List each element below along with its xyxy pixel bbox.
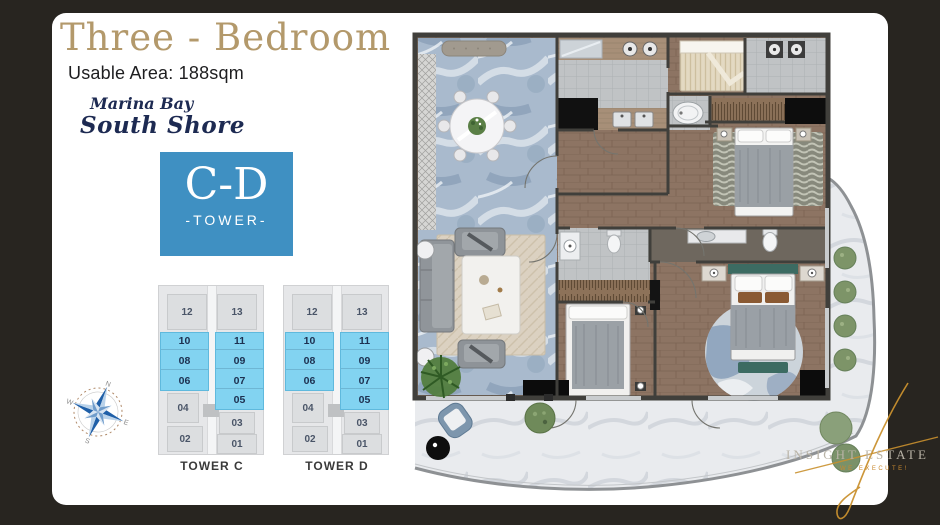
unit-13: 13 (217, 294, 257, 330)
side-table (426, 436, 450, 460)
watermark-name: INSIGHT ESTATE (786, 447, 936, 463)
brand-line1: Marina Bay (90, 96, 245, 112)
svg-text:W: W (65, 398, 74, 407)
coffee-table (462, 256, 520, 334)
usable-area-text: Usable Area: 188sqm (68, 63, 244, 84)
svg-text:S: S (84, 438, 91, 446)
unit-12: 12 (292, 294, 332, 330)
doorway-block (650, 280, 660, 310)
unit-11: 11 (341, 336, 388, 350)
tower-d-diagram: 12 13 10 08 06 11 09 07 05 04 03 02 01 T… (281, 283, 393, 483)
bedroom-2 (713, 128, 823, 216)
tower-c-label: TOWER C (156, 459, 268, 473)
laundry (745, 38, 828, 95)
tower-badge: C-D -TOWER- (160, 152, 293, 256)
closet (785, 98, 828, 124)
watermark-tagline: WE EXECUTE! (840, 466, 909, 472)
master-bathroom (650, 228, 828, 262)
kitchen (558, 38, 668, 130)
unit-13: 13 (342, 294, 382, 330)
tower-c-footprint: 12 13 10 08 06 11 09 07 05 04 03 02 01 (158, 285, 264, 455)
bed-bench (738, 362, 788, 373)
unit-10: 10 (161, 336, 208, 350)
unit-06: 06 (286, 376, 333, 387)
planter-ledge (418, 54, 436, 230)
unit-07: 07 (341, 376, 388, 390)
unit-09: 09 (216, 356, 263, 370)
tower-badge-name: C-D (160, 160, 293, 211)
tower-d-footprint: 12 13 10 08 06 11 09 07 05 04 03 02 01 (283, 285, 389, 455)
unit-10: 10 (286, 336, 333, 350)
unit-04: 04 (292, 393, 324, 423)
svg-text:N: N (104, 381, 111, 389)
tower-badge-label: -TOWER- (160, 212, 293, 228)
highlighted-units-right: 11 09 07 05 (340, 332, 389, 410)
unit-01: 01 (342, 434, 382, 454)
compass-rose-icon: N E S W (64, 378, 132, 446)
bathroom-2 (558, 228, 650, 302)
page-title: Three - Bedroom (60, 16, 391, 59)
unit-11: 11 (216, 336, 263, 350)
brand-line2: South Shore (80, 114, 245, 137)
unit-02: 02 (292, 426, 328, 452)
unit-05: 05 (216, 395, 263, 406)
tower-c-diagram: 12 13 10 08 06 11 09 07 05 04 03 02 01 T… (156, 283, 268, 483)
svg-text:E: E (122, 419, 129, 427)
unit-06: 06 (161, 376, 208, 387)
wardrobe (705, 98, 785, 122)
unit-05: 05 (341, 395, 388, 406)
highlighted-units-right: 11 09 07 05 (215, 332, 264, 410)
fridge (558, 98, 598, 130)
unit-02: 02 (167, 426, 203, 452)
page: Three - Bedroom Usable Area: 188sqm Mari… (0, 0, 940, 525)
brand-logo: Marina Bay South Shore (80, 96, 245, 137)
unit-09: 09 (341, 356, 388, 370)
unit-04: 04 (167, 393, 199, 423)
unit-03: 03 (219, 412, 255, 434)
unit-07: 07 (216, 376, 263, 390)
highlighted-units-left: 10 08 06 (285, 332, 334, 391)
tower-d-label: TOWER D (281, 459, 393, 473)
unit-08: 08 (161, 356, 208, 370)
unit-01: 01 (217, 434, 257, 454)
highlighted-units-left: 10 08 06 (160, 332, 209, 391)
unit-12: 12 (167, 294, 207, 330)
unit-03: 03 (344, 412, 380, 434)
unit-08: 08 (286, 356, 333, 370)
